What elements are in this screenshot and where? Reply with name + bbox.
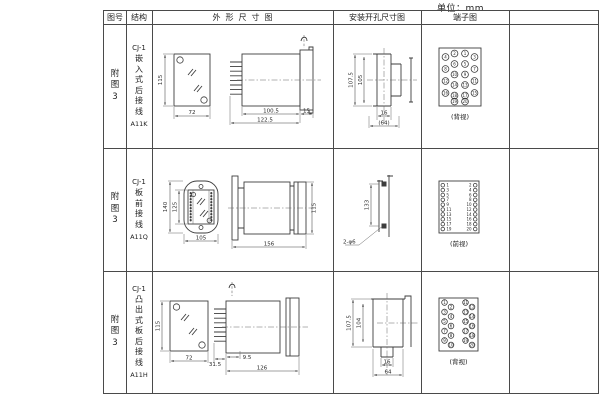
mounting-hole-bottom xyxy=(382,224,387,229)
hatch-marks xyxy=(181,314,197,335)
dim-side-b: 9.5 xyxy=(243,355,252,361)
figure-label-row2: 附图3 xyxy=(110,192,120,227)
terminal-number: 17 xyxy=(462,93,468,98)
structure-label-row3: 凸出式板后接线 xyxy=(135,295,144,369)
terminal-number: 19 xyxy=(446,226,452,231)
terminal-number: 3 xyxy=(473,54,476,59)
terminal-pins-side xyxy=(214,309,226,341)
terminal-number: 7 xyxy=(473,66,476,71)
terminal-circle xyxy=(441,217,445,221)
model-label-row1: A11K xyxy=(131,120,148,128)
dim-side-h: 115 xyxy=(312,202,318,213)
terminal-number: 6 xyxy=(453,61,456,66)
header-structure: 结构 xyxy=(126,11,152,24)
terminal-number: 4 xyxy=(450,314,453,319)
terminal-circle xyxy=(441,198,445,202)
structure-cell-row1: CJ-1 嵌入式后接线 A11K xyxy=(126,24,152,148)
terminal-number: 14 xyxy=(469,314,475,319)
dim-side-len: 126 xyxy=(257,366,268,372)
series-label-row3: CJ-1 xyxy=(132,285,146,293)
centerline xyxy=(367,48,417,124)
dim-side-c: 15 xyxy=(303,109,310,115)
terminal-circle xyxy=(473,213,477,217)
terminal-number: 17 xyxy=(463,328,469,333)
outline-diagram-a11q: 140 125 105 156 115 xyxy=(152,148,333,271)
terminal-pins-side xyxy=(230,62,242,94)
terminal-number: 2 xyxy=(453,51,456,56)
terminal-pins-back3: 1234567891011121314151617181920 xyxy=(442,300,475,348)
datasheet-page: 单位：mm 图号 结构 外形尺寸图 安装开孔尺寸图 端子图 附图3 CJ-1 嵌… xyxy=(0,0,600,400)
terminal-caption-row3: (背视) xyxy=(449,357,467,366)
terminal-circle xyxy=(473,203,477,207)
dim-front-h-inner: 125 xyxy=(172,201,178,212)
terminal-number: 20 xyxy=(462,99,468,104)
terminal-number: 11 xyxy=(463,300,469,305)
terminal-diagram-a11h: 1234567891011121314151617181920 (背视) xyxy=(421,271,509,393)
structure-label-row1: 嵌入式后接线 xyxy=(135,54,144,117)
mounting-diagram-a11k: 107.5 105 16 (64) xyxy=(333,24,421,148)
mounting-diagram-a11q: 133 2-φ6 xyxy=(333,148,421,271)
dim-front-width: 72 xyxy=(186,356,193,362)
terminal-number: 20 xyxy=(469,342,475,347)
terminal-number: 13 xyxy=(463,309,469,314)
header-figure: 图号 xyxy=(104,11,126,24)
dim-h-outer: (64) xyxy=(378,121,389,127)
dim-h-outer: 64 xyxy=(385,370,392,376)
terminal-number: 18 xyxy=(469,333,475,338)
figure-cell-row3: 附图3 xyxy=(104,271,126,393)
terminal-number: 19 xyxy=(452,99,458,104)
terminal-number: 9 xyxy=(443,338,446,343)
terminal-circle xyxy=(473,227,477,231)
terminal-circle xyxy=(441,188,445,192)
column-divider xyxy=(509,11,510,393)
dim-v-inner: 104 xyxy=(357,317,363,328)
terminal-circle xyxy=(473,193,477,197)
terminal-number: 1 xyxy=(464,51,467,56)
spec-table: 图号 结构 外形尺寸图 安装开孔尺寸图 端子图 附图3 CJ-1 嵌入式后接线 … xyxy=(103,10,599,394)
structure-cell-row3: CJ-1 凸出式板后接线 A11H xyxy=(126,271,152,393)
figure-cell-row1: 附图3 xyxy=(104,24,126,148)
dim-front-h-outer: 140 xyxy=(163,201,169,212)
terminal-pins-back1: 4812162610141815913173711151920 xyxy=(442,50,478,105)
terminal-number: 3 xyxy=(443,309,446,314)
dim-v-outer: 107.5 xyxy=(349,72,355,88)
terminal-circle xyxy=(473,222,477,226)
outline-diagram-a11k: 115 72 100.5 15 122.5 xyxy=(152,24,333,148)
terminal-number: 18 xyxy=(452,93,458,98)
structure-label-row2: 板前接线 xyxy=(135,188,144,230)
terminal-number: 2 xyxy=(450,304,453,309)
terminal-number: 8 xyxy=(450,333,453,338)
terminal-circle xyxy=(441,203,445,207)
terminal-number: 20 xyxy=(467,226,473,231)
terminal-number: 15 xyxy=(472,90,478,95)
figure-label-row1: 附图3 xyxy=(110,69,120,104)
hatch-marks xyxy=(197,198,208,217)
dim-side-b: 122.5 xyxy=(257,118,273,124)
terminal-circle xyxy=(473,208,477,212)
hole-note: 2-φ6 xyxy=(343,240,356,246)
dim-front-width: 72 xyxy=(189,110,196,116)
terminal-circle xyxy=(441,227,445,231)
terminal-pins-front2: 1357911131517192468101214161820 xyxy=(441,183,477,232)
hatch-marks xyxy=(188,69,202,92)
terminal-diagram-a11q: 1357911131517192468101214161820 (前视) xyxy=(421,148,509,271)
terminal-number: 14 xyxy=(452,82,458,87)
terminal-number: 5 xyxy=(443,319,446,324)
outline-diagram-a11h: 115 72 31.5 9.5 126 xyxy=(152,271,333,393)
terminal-number: 5 xyxy=(464,61,467,66)
terminal-diagram-a11k: 4812162610141815913173711151920 (背视) xyxy=(421,24,509,148)
terminal-number: 7 xyxy=(443,328,446,333)
terminal-number: 10 xyxy=(448,342,454,347)
terminal-caption-row2: (前视) xyxy=(450,239,468,248)
series-label-row2: CJ-1 xyxy=(132,178,146,186)
terminal-number: 15 xyxy=(463,319,469,324)
dim-h-inner: 16 xyxy=(384,360,391,366)
terminal-number: 16 xyxy=(469,323,475,328)
structure-cell-row2: CJ-1 板前接线 A11Q xyxy=(126,148,152,271)
header-terminal: 端子图 xyxy=(421,11,509,24)
terminal-number: 9 xyxy=(464,72,467,77)
terminal-number: 1 xyxy=(443,300,446,305)
dim-front-height: 115 xyxy=(158,74,164,85)
series-label-row1: CJ-1 xyxy=(132,44,146,52)
terminal-circle xyxy=(473,188,477,192)
dim-front-height: 115 xyxy=(156,320,162,331)
dim-side-a: 100.5 xyxy=(263,109,279,115)
terminal-circle xyxy=(473,217,477,221)
terminal-number: 19 xyxy=(463,338,469,343)
terminal-circle xyxy=(441,193,445,197)
figure-label-row3: 附图3 xyxy=(110,315,120,350)
dim-front-width: 105 xyxy=(196,236,207,242)
terminal-circle xyxy=(441,208,445,212)
terminal-circle xyxy=(441,183,445,187)
terminal-number: 12 xyxy=(443,78,449,83)
terminal-circle xyxy=(473,183,477,187)
terminal-circle xyxy=(441,213,445,217)
mounting-diagram-a11h: 107.5 104 16 64 xyxy=(333,271,421,393)
terminal-number: 12 xyxy=(469,304,475,309)
terminal-circle xyxy=(473,198,477,202)
dim-side-a: 31.5 xyxy=(209,362,222,368)
dim-v-inner: 105 xyxy=(358,74,364,85)
terminal-number: 13 xyxy=(462,82,468,87)
model-label-row2: A11Q xyxy=(130,233,148,241)
dim-side-len: 156 xyxy=(264,242,275,248)
figure-cell-row2: 附图3 xyxy=(104,148,126,271)
terminal-number: 8 xyxy=(444,66,447,71)
dim-v: 133 xyxy=(365,199,371,210)
mounting-hole-top xyxy=(382,182,387,187)
terminal-number: 4 xyxy=(444,54,447,59)
terminal-number: 11 xyxy=(472,78,478,83)
header-outline: 外形尺寸图 xyxy=(152,11,333,24)
terminal-caption-row1: (背视) xyxy=(451,112,469,121)
header-mounting: 安装开孔尺寸图 xyxy=(333,11,421,24)
model-label-row3: A11H xyxy=(130,371,148,379)
terminal-number: 16 xyxy=(443,90,449,95)
terminal-circle xyxy=(441,222,445,226)
dim-h-inner: 16 xyxy=(381,111,388,117)
dim-v-outer: 107.5 xyxy=(347,315,353,331)
terminal-number: 6 xyxy=(450,323,453,328)
terminal-number: 10 xyxy=(452,72,458,77)
